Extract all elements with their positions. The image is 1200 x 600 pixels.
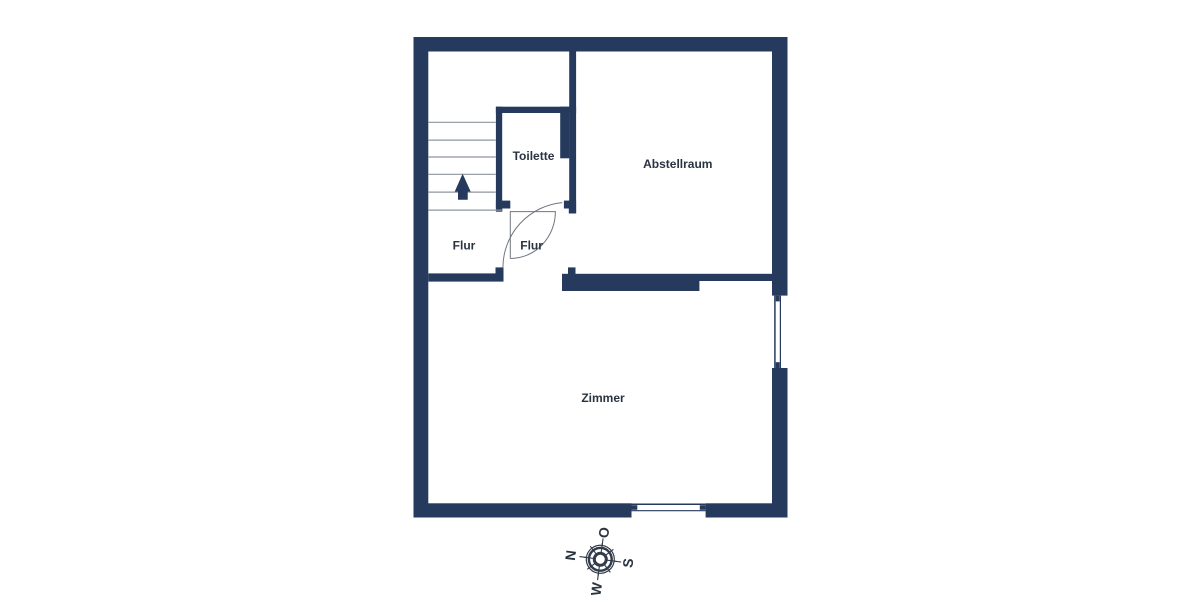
svg-text:Toilette: Toilette <box>513 149 555 163</box>
svg-text:N: N <box>562 549 579 561</box>
svg-text:Abstellraum: Abstellraum <box>643 157 712 171</box>
svg-text:O: O <box>595 526 612 539</box>
svg-text:Flur: Flur <box>520 239 543 253</box>
svg-text:Zimmer: Zimmer <box>581 391 625 405</box>
svg-text:Flur: Flur <box>453 239 476 253</box>
